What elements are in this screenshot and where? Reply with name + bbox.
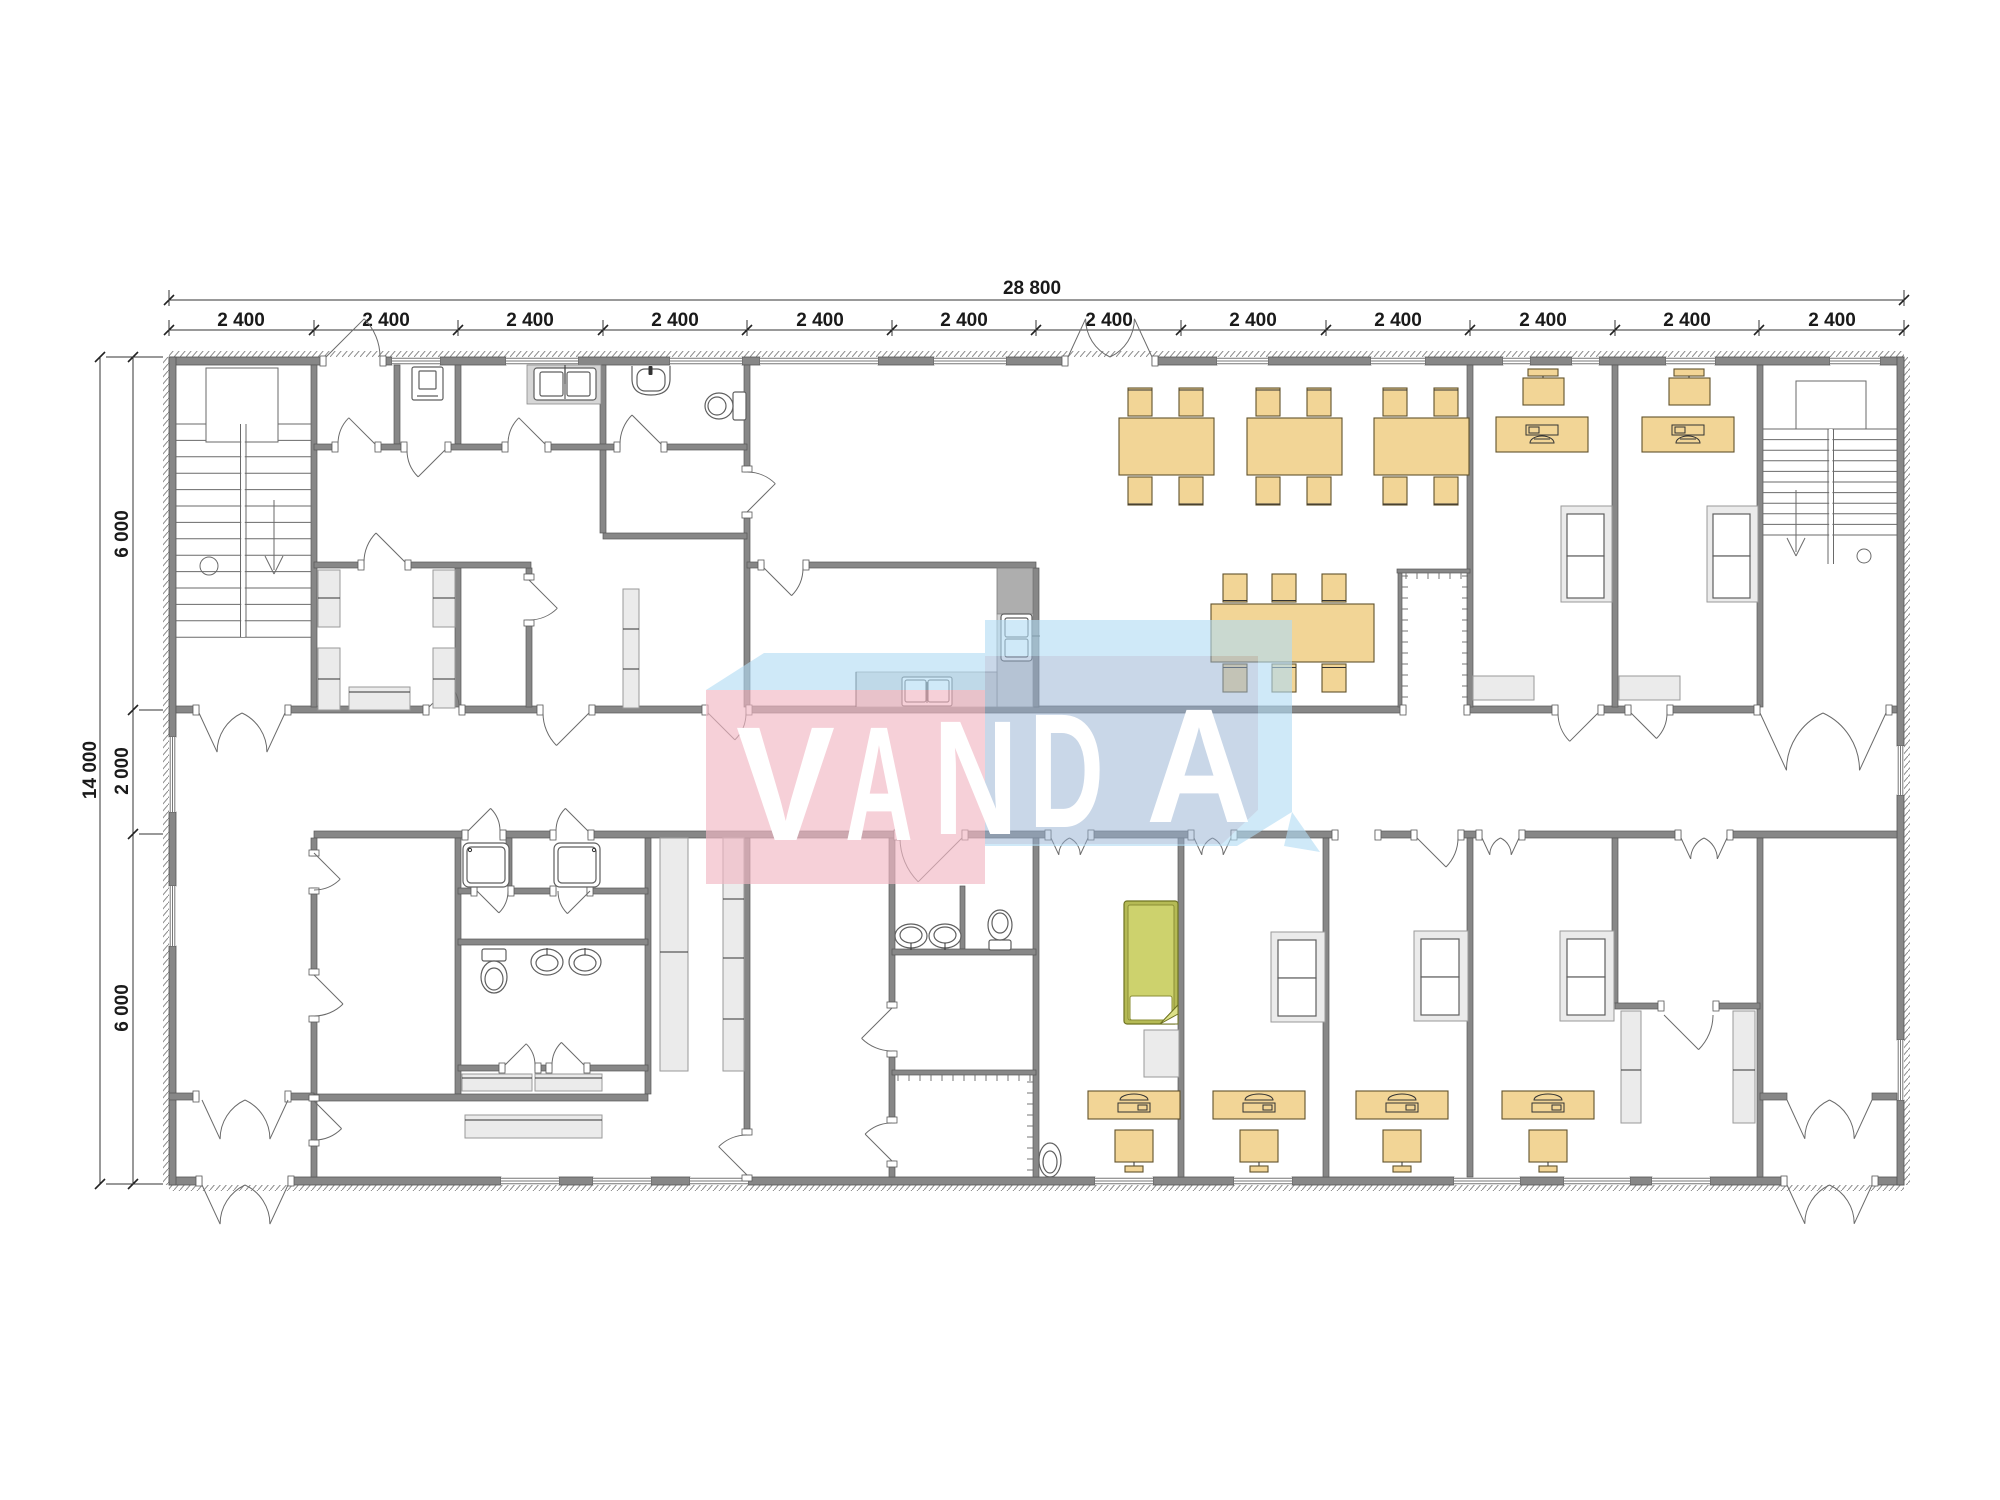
svg-text:A: A [1146, 674, 1252, 857]
svg-text:2 400: 2 400 [1808, 310, 1856, 331]
svg-text:14 000: 14 000 [80, 741, 101, 799]
svg-text:2 400: 2 400 [651, 310, 699, 331]
svg-text:2 400: 2 400 [940, 310, 988, 331]
svg-text:2 400: 2 400 [506, 310, 554, 331]
svg-text:A: A [845, 692, 913, 875]
svg-text:2 400: 2 400 [1229, 310, 1277, 331]
svg-text:28 800: 28 800 [1003, 278, 1061, 299]
svg-text:2 400: 2 400 [1519, 310, 1567, 331]
svg-text:D: D [1029, 679, 1104, 862]
svg-text:V: V [736, 692, 835, 875]
svg-text:6 000: 6 000 [112, 510, 133, 558]
svg-text:2 400: 2 400 [1085, 310, 1133, 331]
svg-text:2 400: 2 400 [362, 310, 410, 331]
svg-text:2 400: 2 400 [1663, 310, 1711, 331]
svg-text:2 000: 2 000 [112, 747, 133, 795]
svg-text:2 400: 2 400 [1374, 310, 1422, 331]
svg-text:2 400: 2 400 [796, 310, 844, 331]
svg-text:2 400: 2 400 [217, 310, 265, 331]
svg-text:N: N [933, 686, 1018, 869]
svg-text:6 000: 6 000 [112, 984, 133, 1032]
